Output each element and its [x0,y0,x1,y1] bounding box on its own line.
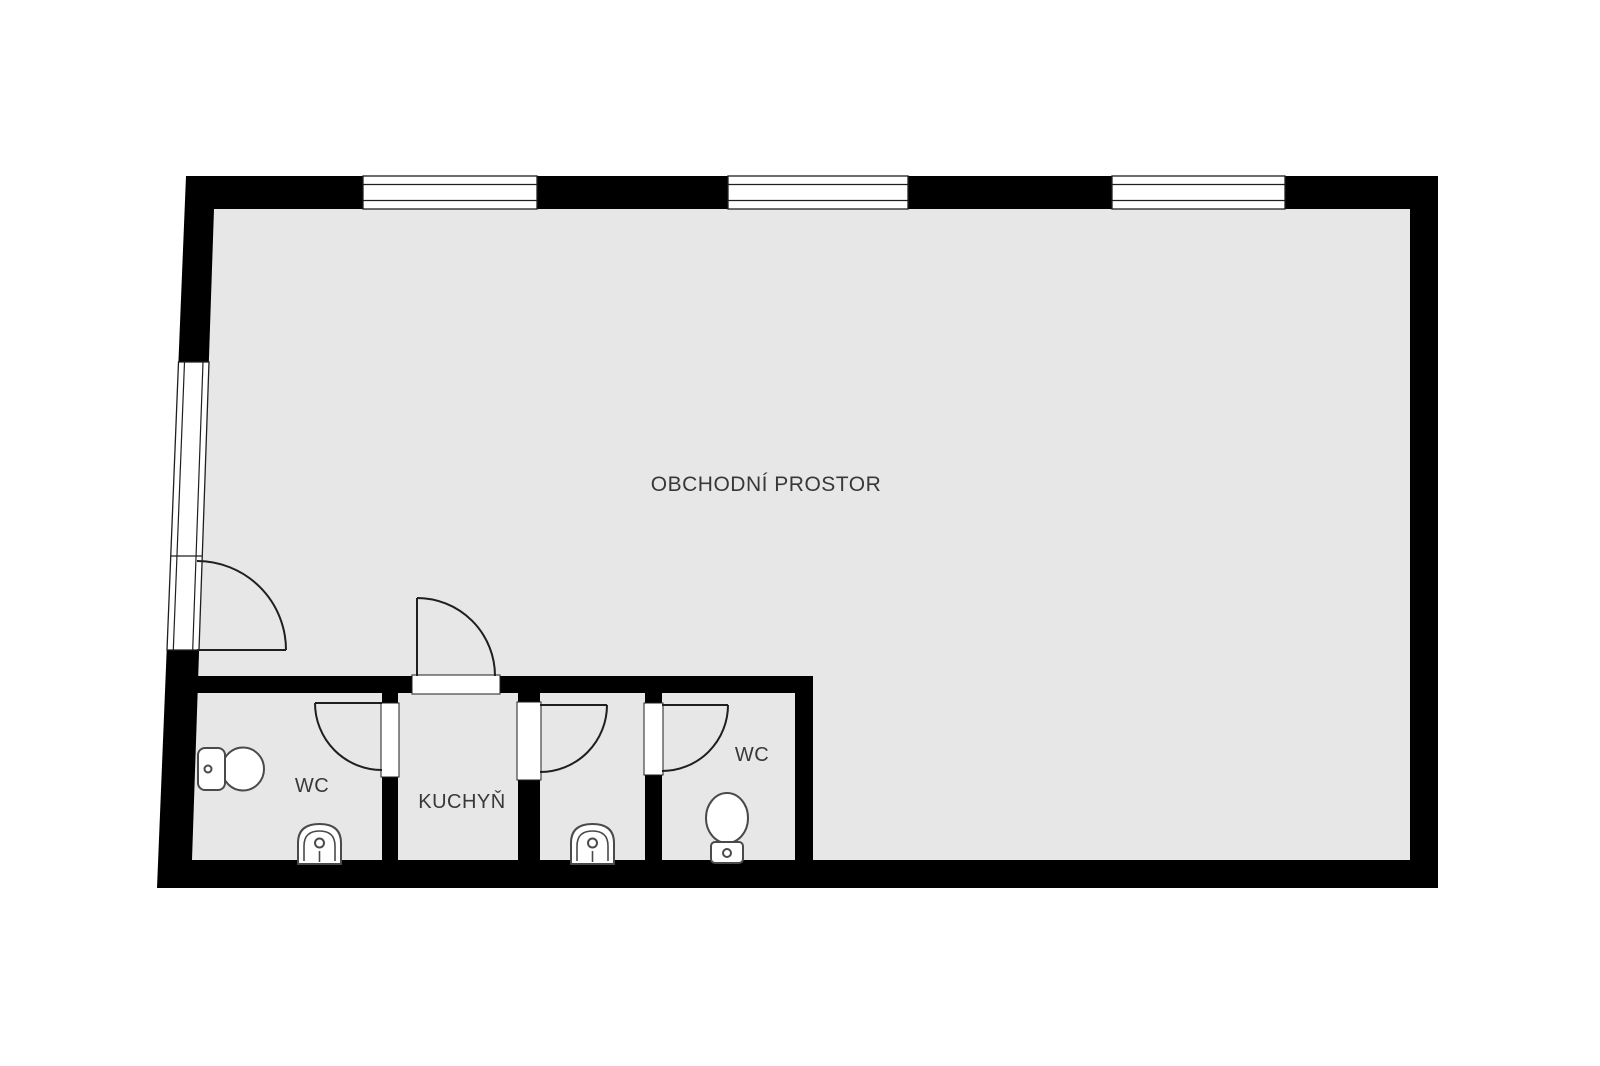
floor-plan-svg: OBCHODNÍ PROSTOR WC KUCHYŇ WC [0,0,1600,1066]
sink-icon-utility-room [571,824,614,864]
room-label-wc-left: WC [295,775,329,797]
kitchen-door-opening [412,675,500,694]
wc-left-door-opening [381,703,399,777]
room-label-wc-right: WC [735,744,769,766]
partition-wall-wc-right [795,676,813,860]
toilet-icon-left-wc [198,748,264,791]
partition-wall-horizontal [196,676,813,693]
window-top-1 [363,176,537,209]
sink-icon-left-wc [298,824,341,864]
floor-plan-canvas: OBCHODNÍ PROSTOR WC KUCHYŇ WC [0,0,1600,1066]
wc-right-door-opening [644,703,663,775]
room-label-kitchen: KUCHYŇ [418,790,505,813]
room-label-main: OBCHODNÍ PROSTOR [651,473,881,496]
utility-door-opening [517,702,541,780]
window-top-2 [728,176,908,209]
toilet-icon-right-wc [706,793,748,863]
window-top-3 [1112,176,1285,209]
